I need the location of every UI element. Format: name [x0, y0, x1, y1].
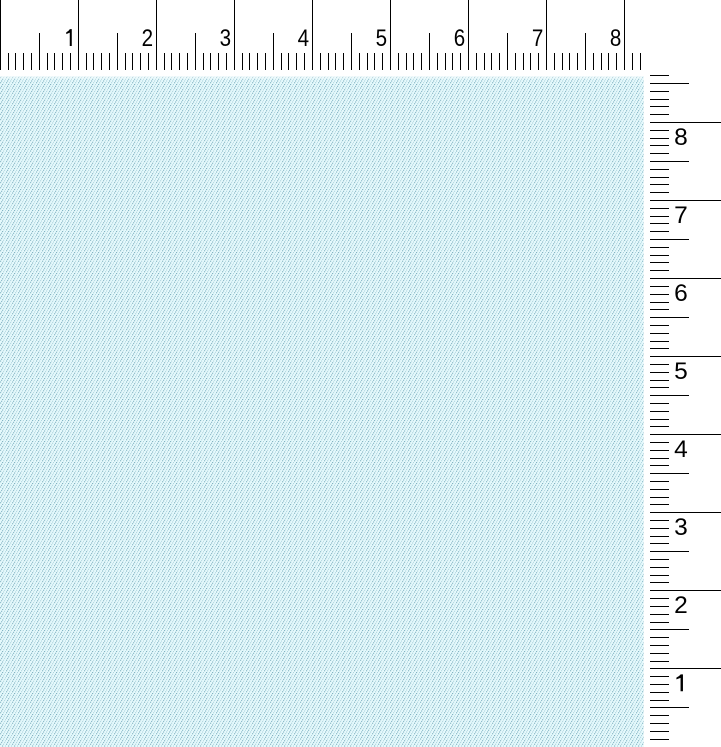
- svg-text:5: 5: [376, 24, 387, 51]
- svg-text:8: 8: [610, 24, 621, 51]
- svg-text:5: 5: [674, 358, 688, 385]
- svg-text:4: 4: [298, 24, 309, 51]
- svg-text:8: 8: [674, 124, 688, 151]
- svg-text:3: 3: [674, 514, 688, 541]
- svg-text:4: 4: [674, 436, 688, 463]
- svg-text:3: 3: [220, 24, 231, 51]
- svg-text:7: 7: [674, 202, 688, 229]
- svg-text:2: 2: [674, 592, 688, 619]
- svg-text:6: 6: [454, 24, 465, 51]
- svg-text:2: 2: [142, 24, 153, 51]
- svg-text:6: 6: [674, 280, 688, 307]
- svg-text:7: 7: [532, 24, 543, 51]
